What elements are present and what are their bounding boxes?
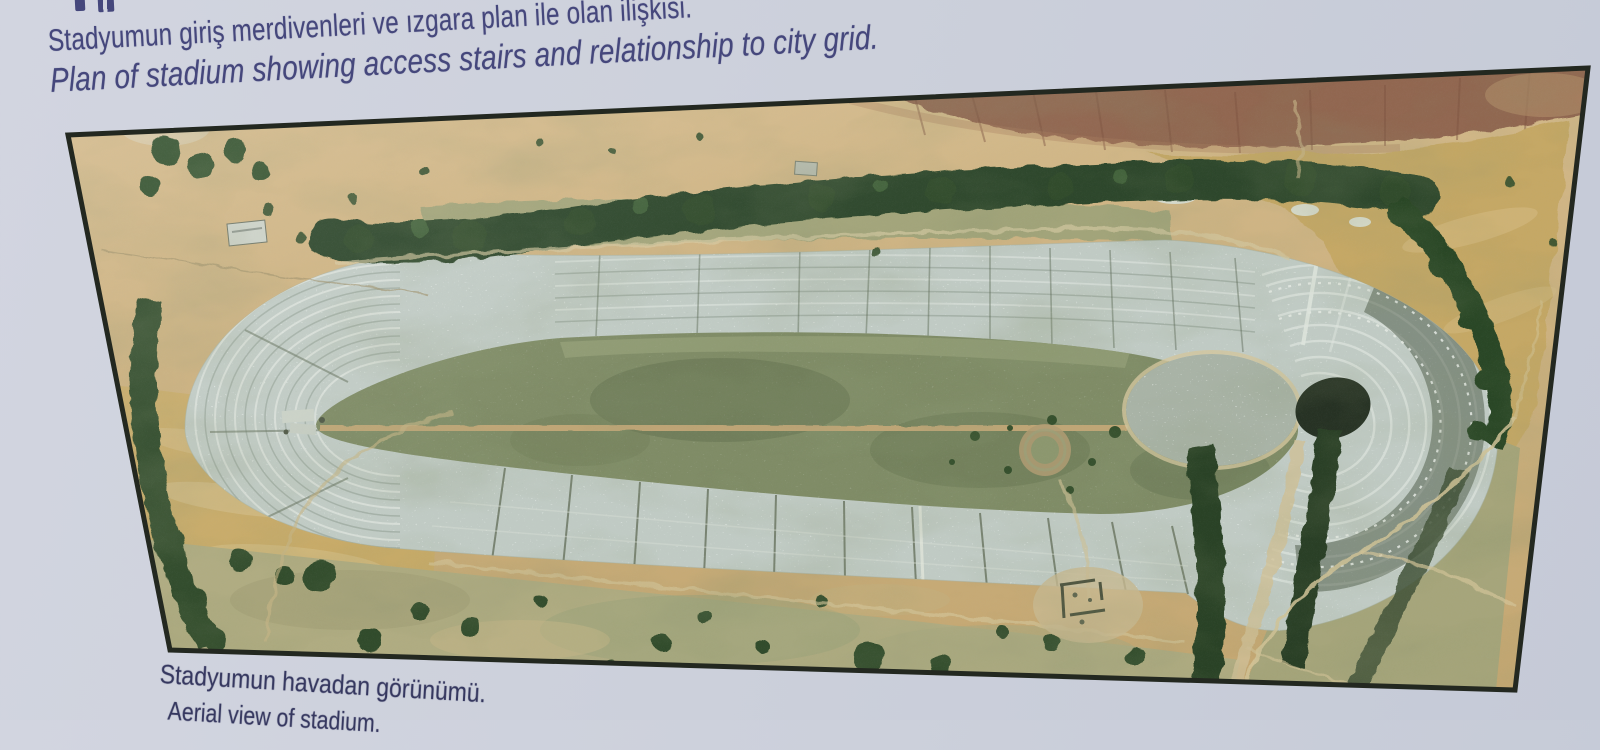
stadium-aerial-photo (0, 0, 1600, 720)
cropped-glyph-fragment (98, 0, 115, 12)
cropped-glyph-fragment (75, 0, 86, 11)
